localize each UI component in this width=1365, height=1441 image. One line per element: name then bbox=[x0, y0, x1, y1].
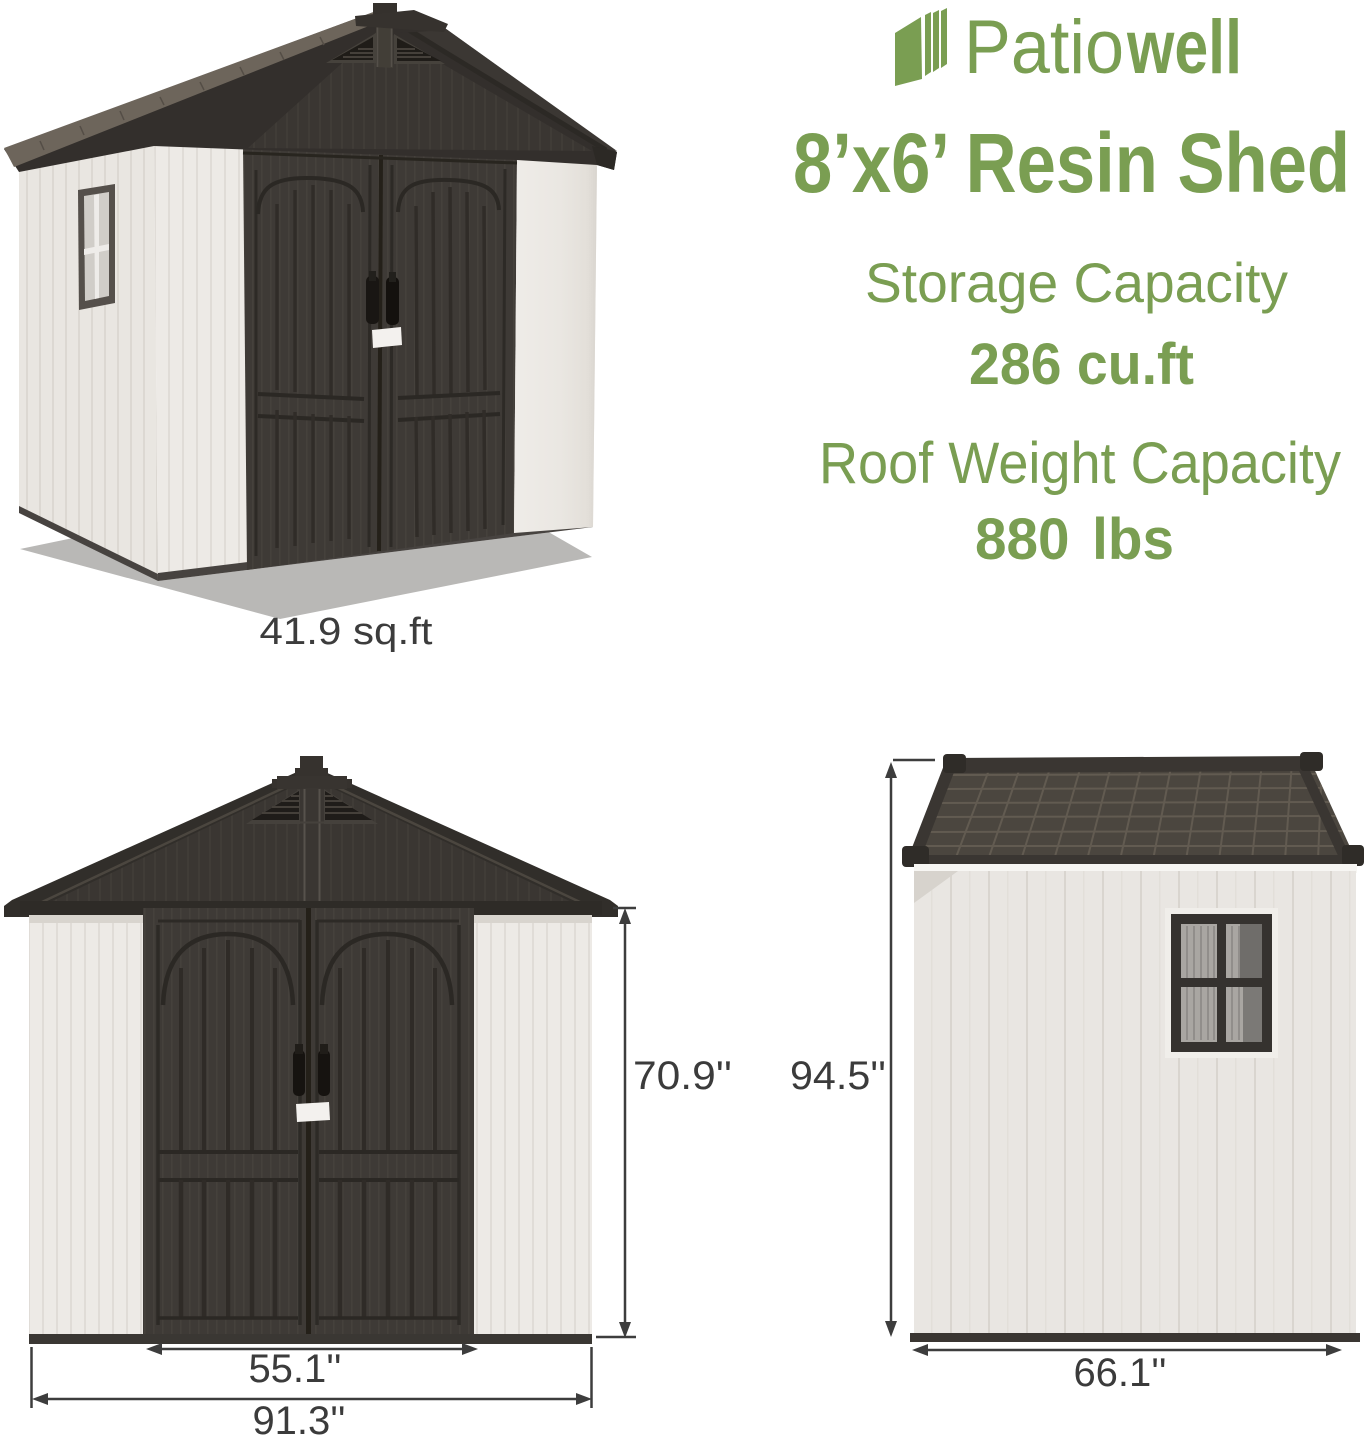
svg-text:91.3'': 91.3'' bbox=[252, 1399, 345, 1441]
svg-text:Roof Weight Capacity: Roof Weight Capacity bbox=[819, 431, 1341, 496]
svg-text:well: well bbox=[1126, 5, 1242, 90]
svg-text:94.5'': 94.5'' bbox=[790, 1054, 886, 1098]
svg-text:66.1'': 66.1'' bbox=[1073, 1351, 1166, 1395]
svg-text:8’x6’ Resin Shed: 8’x6’ Resin Shed bbox=[793, 116, 1350, 210]
svg-text:Storage Capacity: Storage Capacity bbox=[865, 251, 1288, 314]
svg-text:41.9 sq.ft: 41.9 sq.ft bbox=[260, 611, 433, 653]
svg-text:286 cu.ft: 286 cu.ft bbox=[969, 332, 1194, 397]
svg-text:Patio: Patio bbox=[964, 5, 1124, 90]
svg-text:55.1'': 55.1'' bbox=[248, 1347, 341, 1391]
svg-text:880 lbs: 880 lbs bbox=[975, 507, 1174, 572]
svg-text:70.9'': 70.9'' bbox=[633, 1054, 732, 1098]
